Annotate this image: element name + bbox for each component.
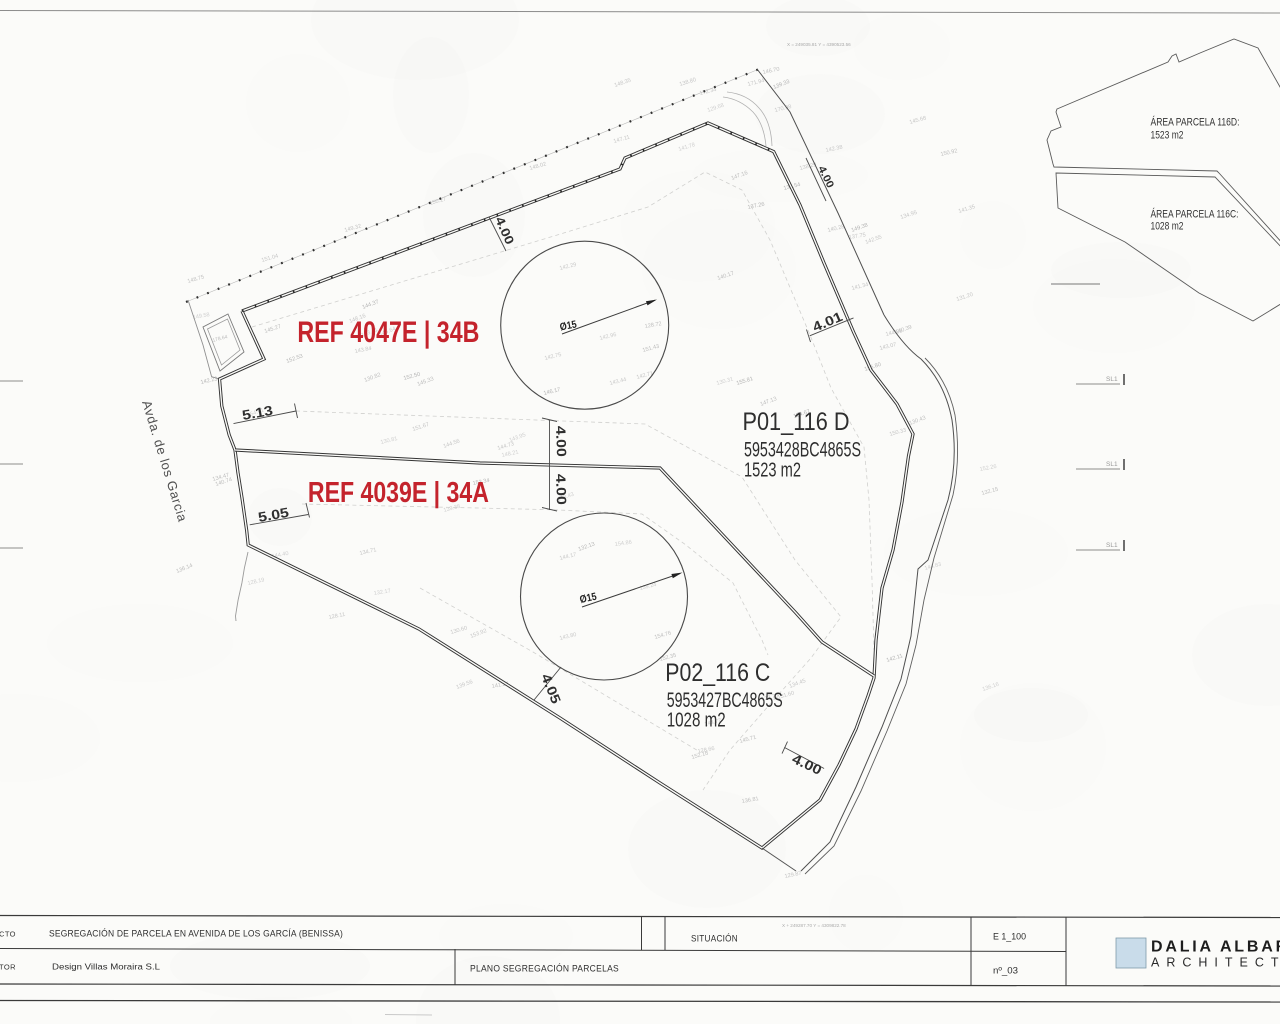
svg-text:ARCHITECTURE: ARCHITECTURE — [1151, 956, 1280, 970]
svg-text:Design Villas Moraira S.L: Design Villas Moraira S.L — [52, 962, 160, 972]
svg-text:REF 4039E | 34A: REF 4039E | 34A — [308, 477, 489, 509]
svg-text:E 1_100: E 1_100 — [993, 932, 1026, 942]
svg-text:PLANO SEGREGACIÓN PARCELAS: PLANO SEGREGACIÓN PARCELAS — [470, 964, 619, 974]
svg-text:TOR: TOR — [0, 963, 16, 972]
svg-text:P01_116 D: P01_116 D — [743, 408, 850, 436]
svg-text:5953428BC4865S: 5953428BC4865S — [744, 439, 861, 462]
svg-text:P02_116 C: P02_116 C — [665, 659, 770, 687]
svg-text:SL1: SL1 — [1106, 376, 1118, 383]
svg-text:ÁREA PARCELA 116C:: ÁREA PARCELA 116C: — [1151, 208, 1239, 221]
svg-text:4.00: 4.00 — [553, 474, 569, 506]
svg-text:1028 m2: 1028 m2 — [1151, 221, 1184, 233]
svg-text:1523 m2: 1523 m2 — [1151, 130, 1184, 142]
svg-text:SL1: SL1 — [1106, 542, 1118, 549]
svg-text:REF 4047E | 34B: REF 4047E | 34B — [297, 316, 479, 349]
svg-text:DALIA ALBARRACIN: DALIA ALBARRACIN — [1151, 939, 1280, 956]
svg-text:ÁREA PARCELA 116D:: ÁREA PARCELA 116D: — [1151, 116, 1240, 129]
svg-text:SITUACIÓN: SITUACIÓN — [691, 934, 738, 944]
svg-text:4.00: 4.00 — [553, 426, 569, 458]
svg-text:X = 249035.81 Y = 4390523.56: X = 249035.81 Y = 4390523.56 — [787, 42, 851, 47]
svg-text:1523 m2: 1523 m2 — [744, 460, 801, 482]
svg-text:SEGREGACIÓN DE PARCELA EN AVEN: SEGREGACIÓN DE PARCELA EN AVENIDA DE LOS… — [49, 929, 343, 939]
svg-text:CTO: CTO — [0, 930, 16, 939]
svg-text:SL1: SL1 — [1106, 461, 1118, 468]
svg-text:nº_03: nº_03 — [993, 966, 1018, 976]
svg-text:1028 m2: 1028 m2 — [667, 710, 726, 732]
svg-text:X + 249287.70 Y = 4309822.78: X + 249287.70 Y = 4309822.78 — [782, 923, 846, 928]
